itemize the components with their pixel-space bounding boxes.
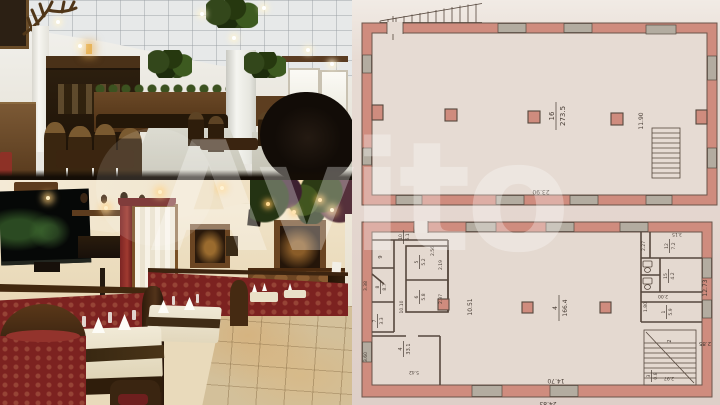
ceiling-light bbox=[56, 20, 60, 24]
svg-text:8.7: 8.7 bbox=[382, 283, 388, 290]
svg-text:33.1: 33.1 bbox=[406, 343, 412, 354]
svg-text:4.2: 4.2 bbox=[670, 272, 676, 279]
dim-5-42: 5.42 bbox=[409, 369, 419, 375]
listing-image: 16 273.5 11.90 23.90 bbox=[0, 0, 720, 405]
ceiling-light bbox=[306, 48, 310, 52]
curtain-red bbox=[120, 202, 132, 290]
wine-glass bbox=[108, 312, 112, 323]
room-2-label: 2 bbox=[667, 339, 673, 342]
bottom-shadow bbox=[0, 170, 352, 180]
plant-chandelier bbox=[244, 52, 286, 78]
dim-11-90: 11.90 bbox=[638, 112, 645, 129]
table bbox=[200, 138, 258, 150]
column bbox=[600, 302, 611, 313]
svg-text:273.5: 273.5 bbox=[559, 106, 567, 126]
vine-light bbox=[266, 202, 270, 206]
booth-cushion-highlight bbox=[6, 330, 80, 342]
svg-text:5.8: 5.8 bbox=[421, 293, 427, 300]
curtain-valance bbox=[118, 198, 176, 206]
wine-glass bbox=[132, 310, 136, 320]
window-shelf bbox=[282, 56, 348, 62]
ceiling-light bbox=[200, 12, 204, 16]
back-table bbox=[250, 292, 278, 302]
svg-text:4: 4 bbox=[398, 347, 404, 350]
room-9-label: 9 bbox=[378, 255, 384, 258]
svg-text:4: 4 bbox=[552, 306, 559, 310]
vine-light bbox=[292, 210, 296, 214]
svg-text:16: 16 bbox=[548, 111, 556, 120]
svg-text:6.1: 6.1 bbox=[405, 233, 411, 240]
wine-glass bbox=[172, 296, 175, 305]
dim-10-51: 10.51 bbox=[467, 298, 474, 315]
plant-chandelier bbox=[206, 0, 258, 28]
dim-12-73: 12.73 bbox=[702, 279, 709, 296]
svg-text:1: 1 bbox=[661, 310, 667, 313]
svg-text:0.8: 0.8 bbox=[653, 372, 659, 379]
dim-2-27: 2.27 bbox=[641, 241, 647, 251]
floor-plan-top: 16 273.5 11.90 23.90 bbox=[362, 4, 717, 206]
plant-chandelier bbox=[148, 50, 192, 78]
booth-front-body bbox=[0, 336, 86, 405]
entrance-gap bbox=[387, 22, 403, 34]
dim-23-90: 23.90 bbox=[532, 188, 549, 195]
ceiling-light bbox=[262, 6, 266, 10]
chair-cushion-red bbox=[118, 394, 148, 405]
ceiling-spot bbox=[104, 206, 108, 210]
ceiling-light bbox=[232, 36, 236, 40]
dim-2-19: 2.19 bbox=[438, 260, 444, 270]
dim-14-70: 14.70 bbox=[547, 377, 564, 384]
svg-text:8: 8 bbox=[375, 285, 381, 288]
svg-text:10: 10 bbox=[398, 234, 404, 240]
svg-text:3: 3 bbox=[646, 374, 652, 377]
ceiling-spot bbox=[46, 196, 50, 200]
floor-plan-bottom: 4 166.4 10.51 10 6.1 9 5 5.2 8 8.7 bbox=[362, 221, 712, 405]
tv-bracket bbox=[34, 262, 60, 272]
picture-frame-1 bbox=[190, 224, 230, 268]
floor-plans: 16 273.5 11.90 23.90 bbox=[360, 0, 720, 405]
column bbox=[522, 302, 533, 313]
ceiling-spot bbox=[330, 208, 334, 212]
svg-text:15: 15 bbox=[663, 273, 669, 279]
column bbox=[611, 113, 623, 125]
dim-2-97: 2.97 bbox=[664, 375, 674, 381]
svg-text:12: 12 bbox=[664, 243, 670, 249]
bar-lantern bbox=[86, 44, 92, 54]
dim-3-15: 3.15 bbox=[672, 231, 682, 237]
photo-dining-hall bbox=[0, 0, 352, 180]
svg-text:5.9: 5.9 bbox=[668, 308, 674, 315]
wine-glass bbox=[196, 294, 199, 303]
ceiling-spot bbox=[158, 190, 162, 194]
pilaster bbox=[372, 105, 383, 120]
photo-booth-room bbox=[0, 180, 352, 405]
svg-text:166.4: 166.4 bbox=[562, 299, 569, 316]
svg-text:5.2: 5.2 bbox=[421, 258, 427, 265]
dim-2-37: 2.37 bbox=[438, 294, 444, 304]
vine-light bbox=[318, 198, 322, 202]
table bbox=[56, 150, 134, 168]
dim-2-56: 2.56 bbox=[430, 246, 436, 256]
svg-text:6: 6 bbox=[414, 295, 420, 298]
back-table bbox=[284, 290, 306, 298]
dim-3-38: 3.38 bbox=[363, 281, 369, 291]
ceiling-light bbox=[78, 44, 82, 48]
svg-text:3.3: 3.3 bbox=[379, 317, 385, 324]
dim-2-00: 2.00 bbox=[658, 293, 668, 299]
dim-3-60: 3.60 bbox=[363, 352, 369, 362]
ceiling-light bbox=[330, 62, 334, 66]
wall-decor-dark bbox=[226, 236, 238, 256]
svg-text:7: 7 bbox=[372, 319, 378, 322]
column bbox=[528, 111, 540, 123]
foreground-blur-object bbox=[260, 92, 352, 180]
dim-2-85: 2.85 bbox=[698, 340, 711, 346]
entrance-gap bbox=[414, 221, 428, 233]
antlers-decor bbox=[18, 0, 82, 40]
dim-24-83: 24.83 bbox=[539, 400, 556, 405]
svg-text:7.2: 7.2 bbox=[671, 242, 677, 249]
dim-1-80: 1.80 bbox=[643, 302, 649, 312]
pilaster bbox=[696, 110, 707, 124]
ceiling-spot bbox=[220, 186, 224, 190]
column bbox=[445, 109, 457, 121]
svg-text:5: 5 bbox=[414, 260, 420, 263]
dim-10-10: 10.10 bbox=[399, 300, 405, 313]
bar-cornice bbox=[46, 56, 140, 70]
booth-divider-far bbox=[230, 280, 248, 326]
